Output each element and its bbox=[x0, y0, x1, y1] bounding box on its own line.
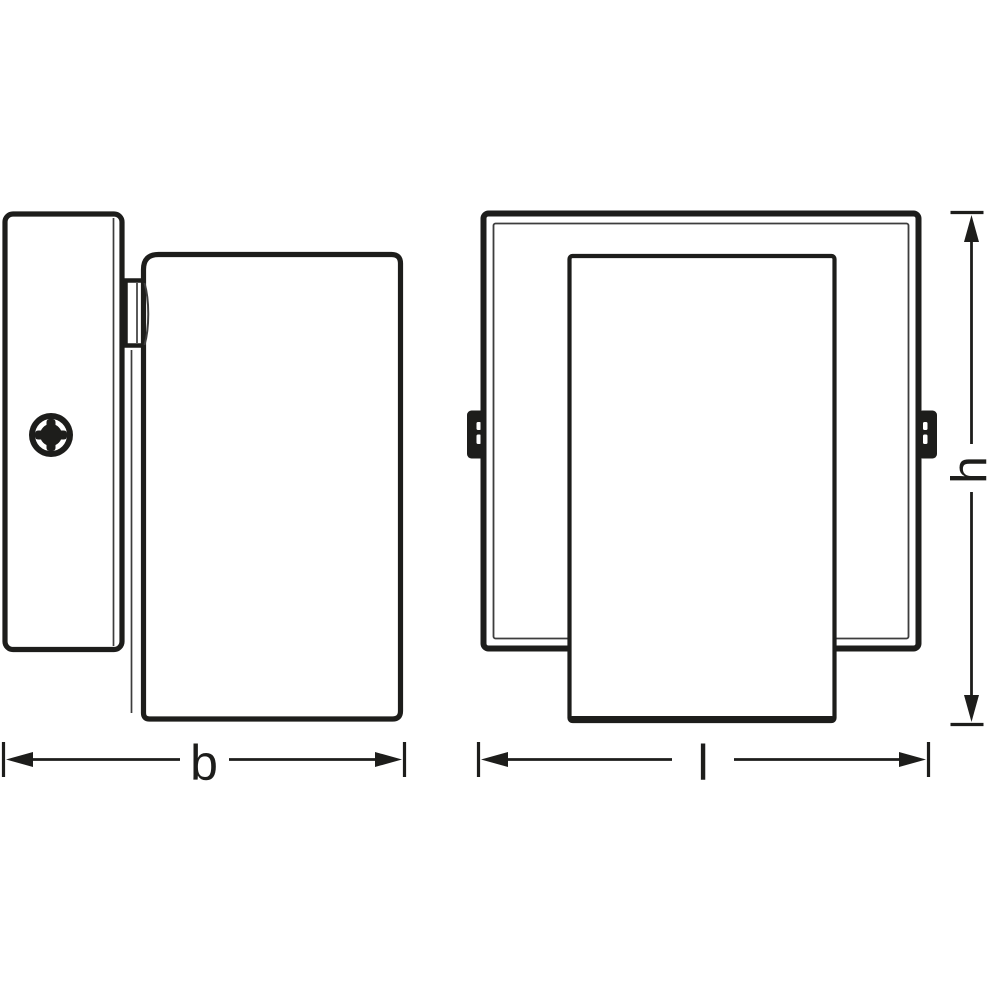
dim-l-arrow-left-icon bbox=[481, 752, 508, 767]
dim-h-label: h bbox=[942, 456, 998, 484]
dim-h: h bbox=[942, 213, 998, 725]
dim-b-label: b bbox=[190, 735, 218, 791]
dim-h-arrow-down-icon bbox=[964, 695, 979, 722]
dimension-diagram: b l h bbox=[0, 0, 1000, 1000]
pivot-tab-left-slit-2 bbox=[477, 435, 482, 445]
pivot-tab-right-slit-1 bbox=[923, 422, 928, 430]
lamp-head-side bbox=[144, 255, 401, 720]
mounting-screw bbox=[29, 413, 73, 457]
dim-l: l bbox=[479, 735, 929, 791]
dim-b-arrow-right-icon bbox=[375, 752, 402, 767]
pivot-tab-left-slit-1 bbox=[477, 422, 482, 430]
dimension-diagram-page: b l h bbox=[0, 0, 1000, 1000]
dim-l-label: l bbox=[697, 735, 708, 791]
dim-l-arrow-right-icon bbox=[899, 752, 926, 767]
side-view bbox=[5, 214, 401, 719]
pivot-tab-right-slit-2 bbox=[923, 435, 928, 445]
dim-b: b bbox=[4, 735, 405, 791]
front-view bbox=[467, 214, 937, 722]
dim-h-arrow-up-icon bbox=[964, 215, 979, 242]
dim-b-arrow-left-icon bbox=[6, 752, 33, 767]
lamp-body-front bbox=[570, 256, 835, 721]
